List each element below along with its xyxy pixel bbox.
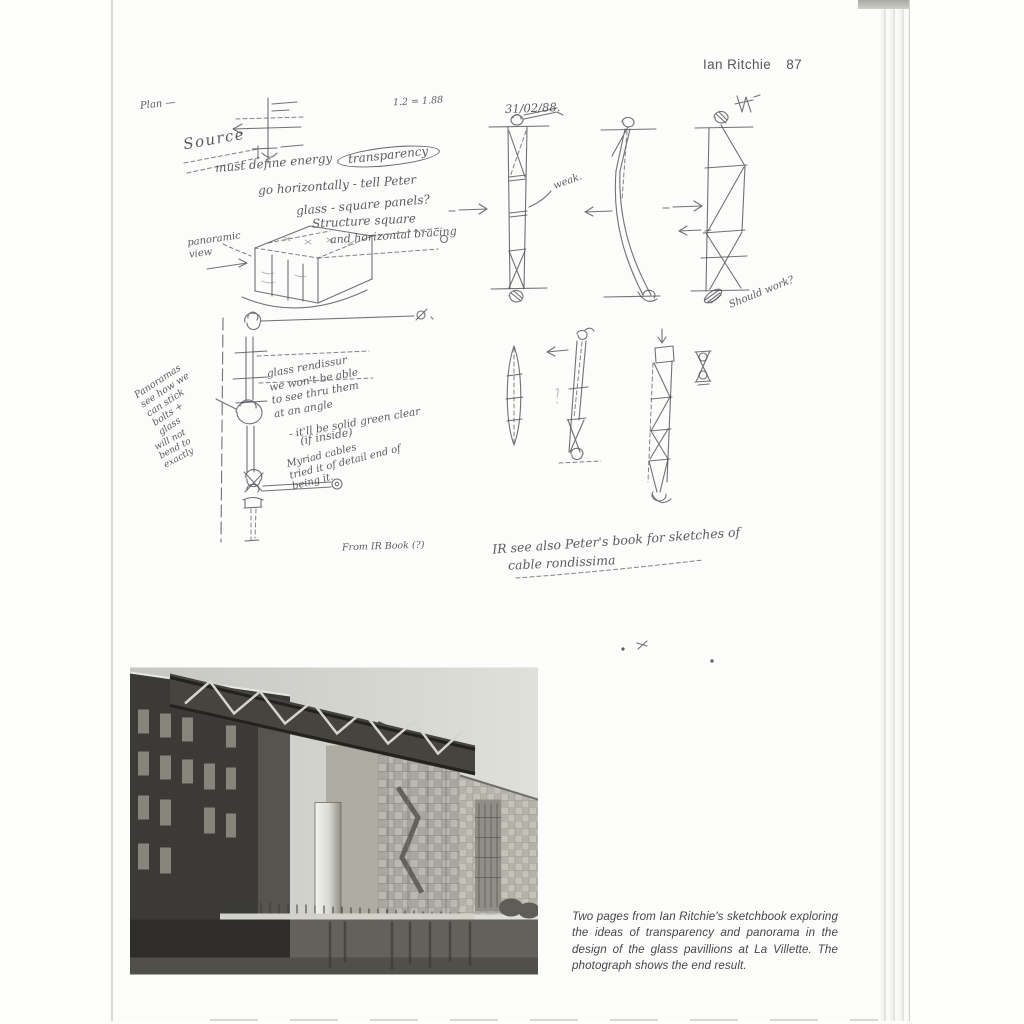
hw-sketch-date: 31/02/88.	[505, 101, 561, 116]
column-study-2	[585, 117, 660, 301]
photo-water	[130, 920, 538, 975]
scanned-book-page: Ian Ritchie 87	[0, 0, 1024, 1024]
column-study-3	[663, 95, 760, 305]
photo-caption: Two pages from Ian Ritchie's sketchbook …	[572, 909, 838, 975]
photo-small-tower	[475, 800, 501, 912]
column-study-1	[449, 108, 563, 302]
tall-truss-sketch	[648, 329, 711, 503]
building-photo-art	[130, 667, 538, 975]
building-photo	[130, 667, 538, 975]
stray-marks	[516, 560, 714, 663]
braced-column-sketch	[547, 328, 601, 463]
photo-steel-cylinder	[315, 803, 341, 918]
lens-column-sketch	[506, 346, 523, 445]
